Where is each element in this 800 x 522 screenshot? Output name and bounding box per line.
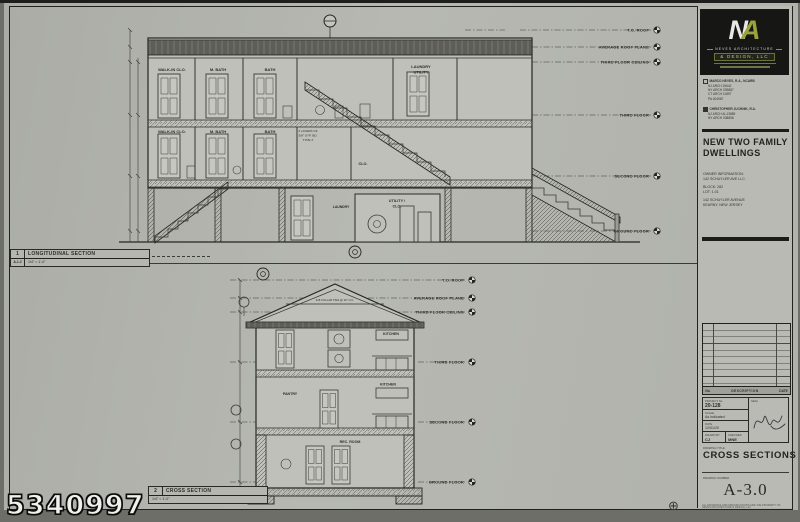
architect-principal: MARCO NEVES, R.A., NCARB NJ ARCH 15642 N… [703,79,789,101]
divider-bar [702,129,789,132]
license-line: NY ARCH 038898 [708,116,789,120]
signature [751,404,787,438]
section-scale: 1/4" = 1'-0" [149,496,173,503]
level-label: THIRD FLOOR CEILING [416,310,464,315]
level-label: T.O. ROOF [442,278,464,283]
room-label: WALK-IN CLO. [158,67,186,72]
section-number: 1 [11,250,25,258]
gyp-note: 2 LAYERS OF [298,129,317,133]
architect-name: MARCO NEVES, R.A., NCARB [710,79,755,83]
gyp-note: 5/8" GYP. BD. [299,134,318,138]
room-label: CLO. [392,205,401,209]
section-title: CROSS SECTION [163,488,214,495]
room-label: UTILITY [413,70,428,75]
room-label: WALK-IN CLO. [158,129,186,134]
revision-rows [703,324,790,387]
rev-col-no: No. [703,389,713,393]
scale-value: As indicated [705,415,725,419]
drawn-by: CJ [705,437,710,442]
level-label: GROUND FLOOR [614,229,649,234]
monogram-a: A [741,15,761,46]
level-label: GROUND FLOOR [429,480,464,485]
date-cell: DATE 12/01/20 [702,420,749,431]
section-number: 2 [149,487,163,495]
section-tag-cross: 2 CROSS SECTION 1/4" = 1'-0" [148,486,268,504]
registration-mark-icon: ⊕ [668,498,679,514]
firm-suffix: & DESIGN, LLC [714,53,775,61]
level-label: THIRD FLOOR [434,360,464,365]
firm-name: NEVES ARCHITECTURE [715,47,774,51]
room-label: CLO. [358,162,367,166]
owner-info: OWNER INFORMATION: 142 SCHUYLER AVE LLC.… [703,172,746,208]
project-number-cell: PROJECT No. 20-128 [702,397,749,409]
project-number: 20-128 [705,403,721,409]
section-title: LONGITUDINAL SECTION [25,251,98,258]
collar-tie-note: 2x8 COLLAR TIES @ 16" O.C. [316,298,355,302]
rev-col-description: DESCRIPTION [713,389,777,393]
revision-header: No. DESCRIPTION DATE [703,386,790,394]
drawing-number: A-3.0 [702,480,789,500]
level-label: AVERAGE ROOF PLANE [599,45,650,50]
room-label: KITCHEN [380,383,396,387]
level-label: SECOND FLOOR [429,420,464,425]
scale-cell: SCALE As indicated [702,409,749,420]
scanned-sheet: T.O. ROOF AVERAGE ROOF PLANE THIRD FLOOR… [0,0,800,522]
room-label: UTILITY / [389,199,406,203]
firm-logo: N A NEVES ARCHITECTURE & DESIGN, LLC [700,9,789,75]
roof-hatch [148,40,532,55]
room-label: LAUNDRY [333,205,350,209]
room-label: M. BATH [210,129,226,134]
room-label: REC. ROOM [340,440,361,444]
level-label: THIRD FLOOR [619,113,649,118]
checked-by: MNE [728,437,737,442]
level-label: SECOND FLOOR [614,174,649,179]
watermark-number: 5340997 [6,490,145,521]
section-tag-longitudinal: 1 LONGITUDINAL SECTION A-1.2 1/4" = 1'-0… [10,249,150,267]
address-line-decor [714,63,776,65]
seal-cell: SEAL [749,397,789,443]
architect-associate: CHRISTOPHER JUCHNIK, R.A. NJ ARCH AI-138… [703,107,789,120]
room-label: M. BATH [210,67,226,72]
revision-table: No. DESCRIPTION DATE [702,323,791,395]
level-label: AVERAGE ROOF PLANE [414,296,465,301]
na-monogram-icon: N A [729,12,761,46]
project-info-block: PROJECT No. 20-128 SCALE As indicated DA… [702,397,789,443]
divider-bar [702,237,789,241]
longitudinal-section-drawing: T.O. ROOF AVERAGE ROOF PLANE THIRD FLOOR… [105,12,670,260]
cross-section-drawing: T.O. ROOF AVERAGE ROOF PLANE THIRD FLOOR… [228,264,550,508]
architect-name: CHRISTOPHER JUCHNIK, R.A. [710,107,756,111]
project-title: NEW TWO FAMILY DWELLINGS [703,137,788,159]
drawing-title: CROSS SECTIONS [703,450,796,461]
project-address: KEARNY, NEW JERSEY [703,203,746,208]
section-scale: 1/4" = 1'-0" [25,259,49,266]
room-label: LAUNDRY [411,64,431,69]
license-line: PA 404987 [708,97,789,101]
level-label: THIRD FLOOR CEILING [601,60,649,65]
address-line-decor [720,66,770,68]
room-label: BATH [265,67,276,72]
room-label: KITCHEN [383,332,399,336]
copyright-note: ALL DRAWINGS AND SPECIFICATIONS ARE THE … [702,505,789,511]
firm-name-row: NEVES ARCHITECTURE [707,47,782,51]
drawn-checked-cell: DRAWN BYCJ CHECKEDMNE [702,431,749,443]
room-label: BATH [265,129,276,134]
owner-label: OWNER INFORMATION: [703,172,746,177]
date-value: 12/01/20 [705,426,719,430]
owner-name: 142 SCHUYLER AVE LLC. [703,177,746,182]
rev-col-date: DATE [777,389,790,393]
room-label: PANTRY [283,392,298,396]
level-label: T.O. ROOF [627,28,649,33]
gyp-note: TYPE X [303,138,314,142]
divider-line [702,472,789,473]
section-sheet-ref: A-1.2 [11,259,25,266]
tag-leader-dashes [152,256,210,257]
